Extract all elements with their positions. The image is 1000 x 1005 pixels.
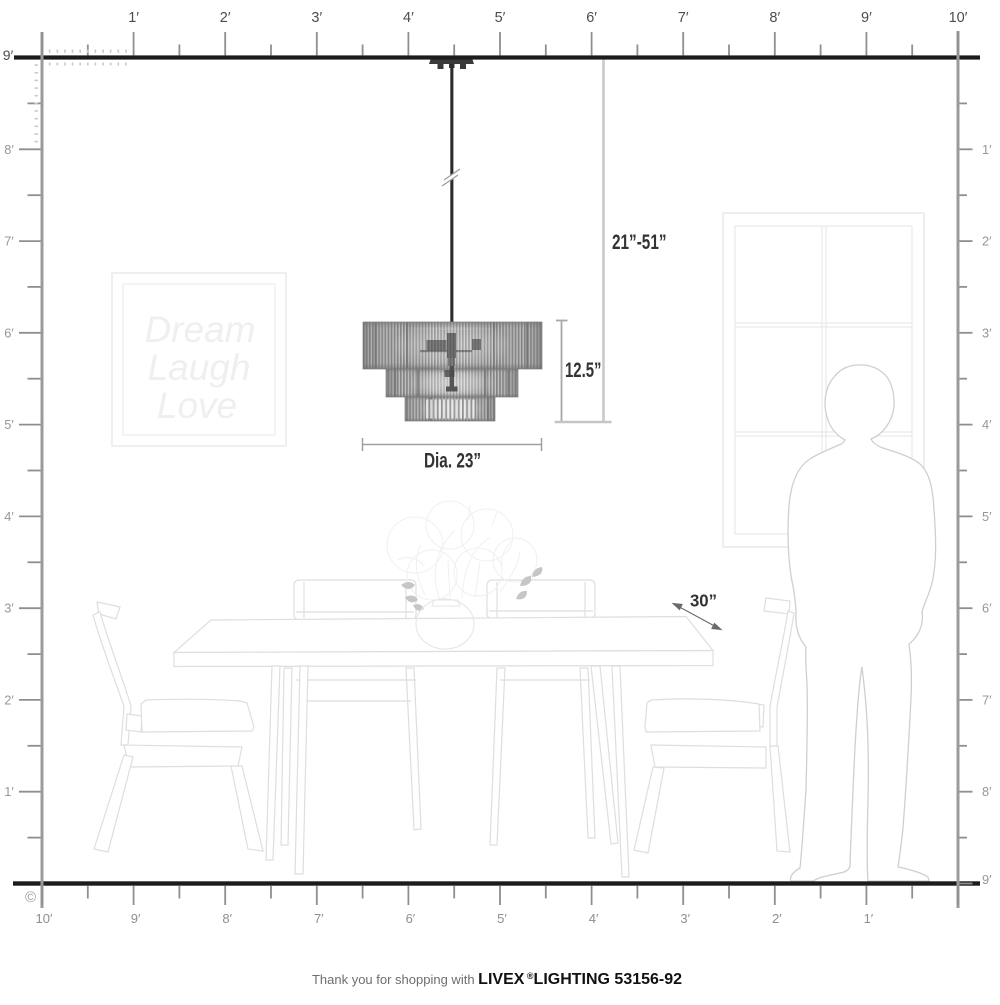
svg-text:3′: 3′ <box>680 911 690 926</box>
svg-text:10′: 10′ <box>36 911 53 926</box>
svg-text:10′: 10′ <box>949 10 968 26</box>
svg-text:6′: 6′ <box>406 911 416 926</box>
svg-text:30”: 30” <box>690 591 717 611</box>
svg-text:3′: 3′ <box>311 10 322 26</box>
svg-text:6′: 6′ <box>982 601 992 616</box>
svg-text:Dream: Dream <box>144 309 255 350</box>
svg-text:5′: 5′ <box>495 10 506 26</box>
svg-text:2′: 2′ <box>982 234 992 249</box>
svg-text:4′: 4′ <box>589 911 599 926</box>
svg-text:2′: 2′ <box>220 10 231 26</box>
svg-text:9′: 9′ <box>982 872 992 887</box>
svg-text:7′: 7′ <box>4 234 14 249</box>
svg-text:21”-51”: 21”-51” <box>612 231 667 254</box>
svg-text:12.5”: 12.5” <box>565 359 602 382</box>
svg-text:5′: 5′ <box>4 417 14 432</box>
svg-text:1′: 1′ <box>128 10 139 26</box>
svg-text:Laugh: Laugh <box>148 347 251 388</box>
svg-text:7′: 7′ <box>314 911 324 926</box>
svg-text:4′: 4′ <box>403 10 414 26</box>
svg-text:9′: 9′ <box>861 10 872 26</box>
svg-text:2′: 2′ <box>772 911 782 926</box>
svg-text:Love: Love <box>157 385 237 426</box>
svg-text:2′: 2′ <box>4 692 14 707</box>
svg-text:8′: 8′ <box>982 784 992 799</box>
svg-text:©: © <box>25 889 36 906</box>
svg-text:9′: 9′ <box>3 47 14 63</box>
svg-text:6′: 6′ <box>586 10 597 26</box>
svg-text:7′: 7′ <box>678 10 689 26</box>
svg-text:Thank you for shopping with LI: Thank you for shopping with LIVEX ®LIGHT… <box>312 971 682 988</box>
svg-text:8′: 8′ <box>222 911 232 926</box>
svg-text:7′: 7′ <box>982 692 992 707</box>
svg-text:6′: 6′ <box>4 325 14 340</box>
svg-text:1′: 1′ <box>4 784 14 799</box>
svg-text:5′: 5′ <box>982 509 992 524</box>
svg-text:4′: 4′ <box>4 509 14 524</box>
svg-text:1′: 1′ <box>864 911 874 926</box>
svg-text:5′: 5′ <box>497 911 507 926</box>
svg-text:8′: 8′ <box>4 142 14 157</box>
svg-text:1′: 1′ <box>982 142 992 157</box>
svg-text:4′: 4′ <box>982 417 992 432</box>
svg-text:9′: 9′ <box>131 911 141 926</box>
svg-text:Dia. 23”: Dia. 23” <box>424 450 481 473</box>
svg-text:3′: 3′ <box>4 601 14 616</box>
svg-text:8′: 8′ <box>769 10 780 26</box>
svg-text:3′: 3′ <box>982 325 992 340</box>
